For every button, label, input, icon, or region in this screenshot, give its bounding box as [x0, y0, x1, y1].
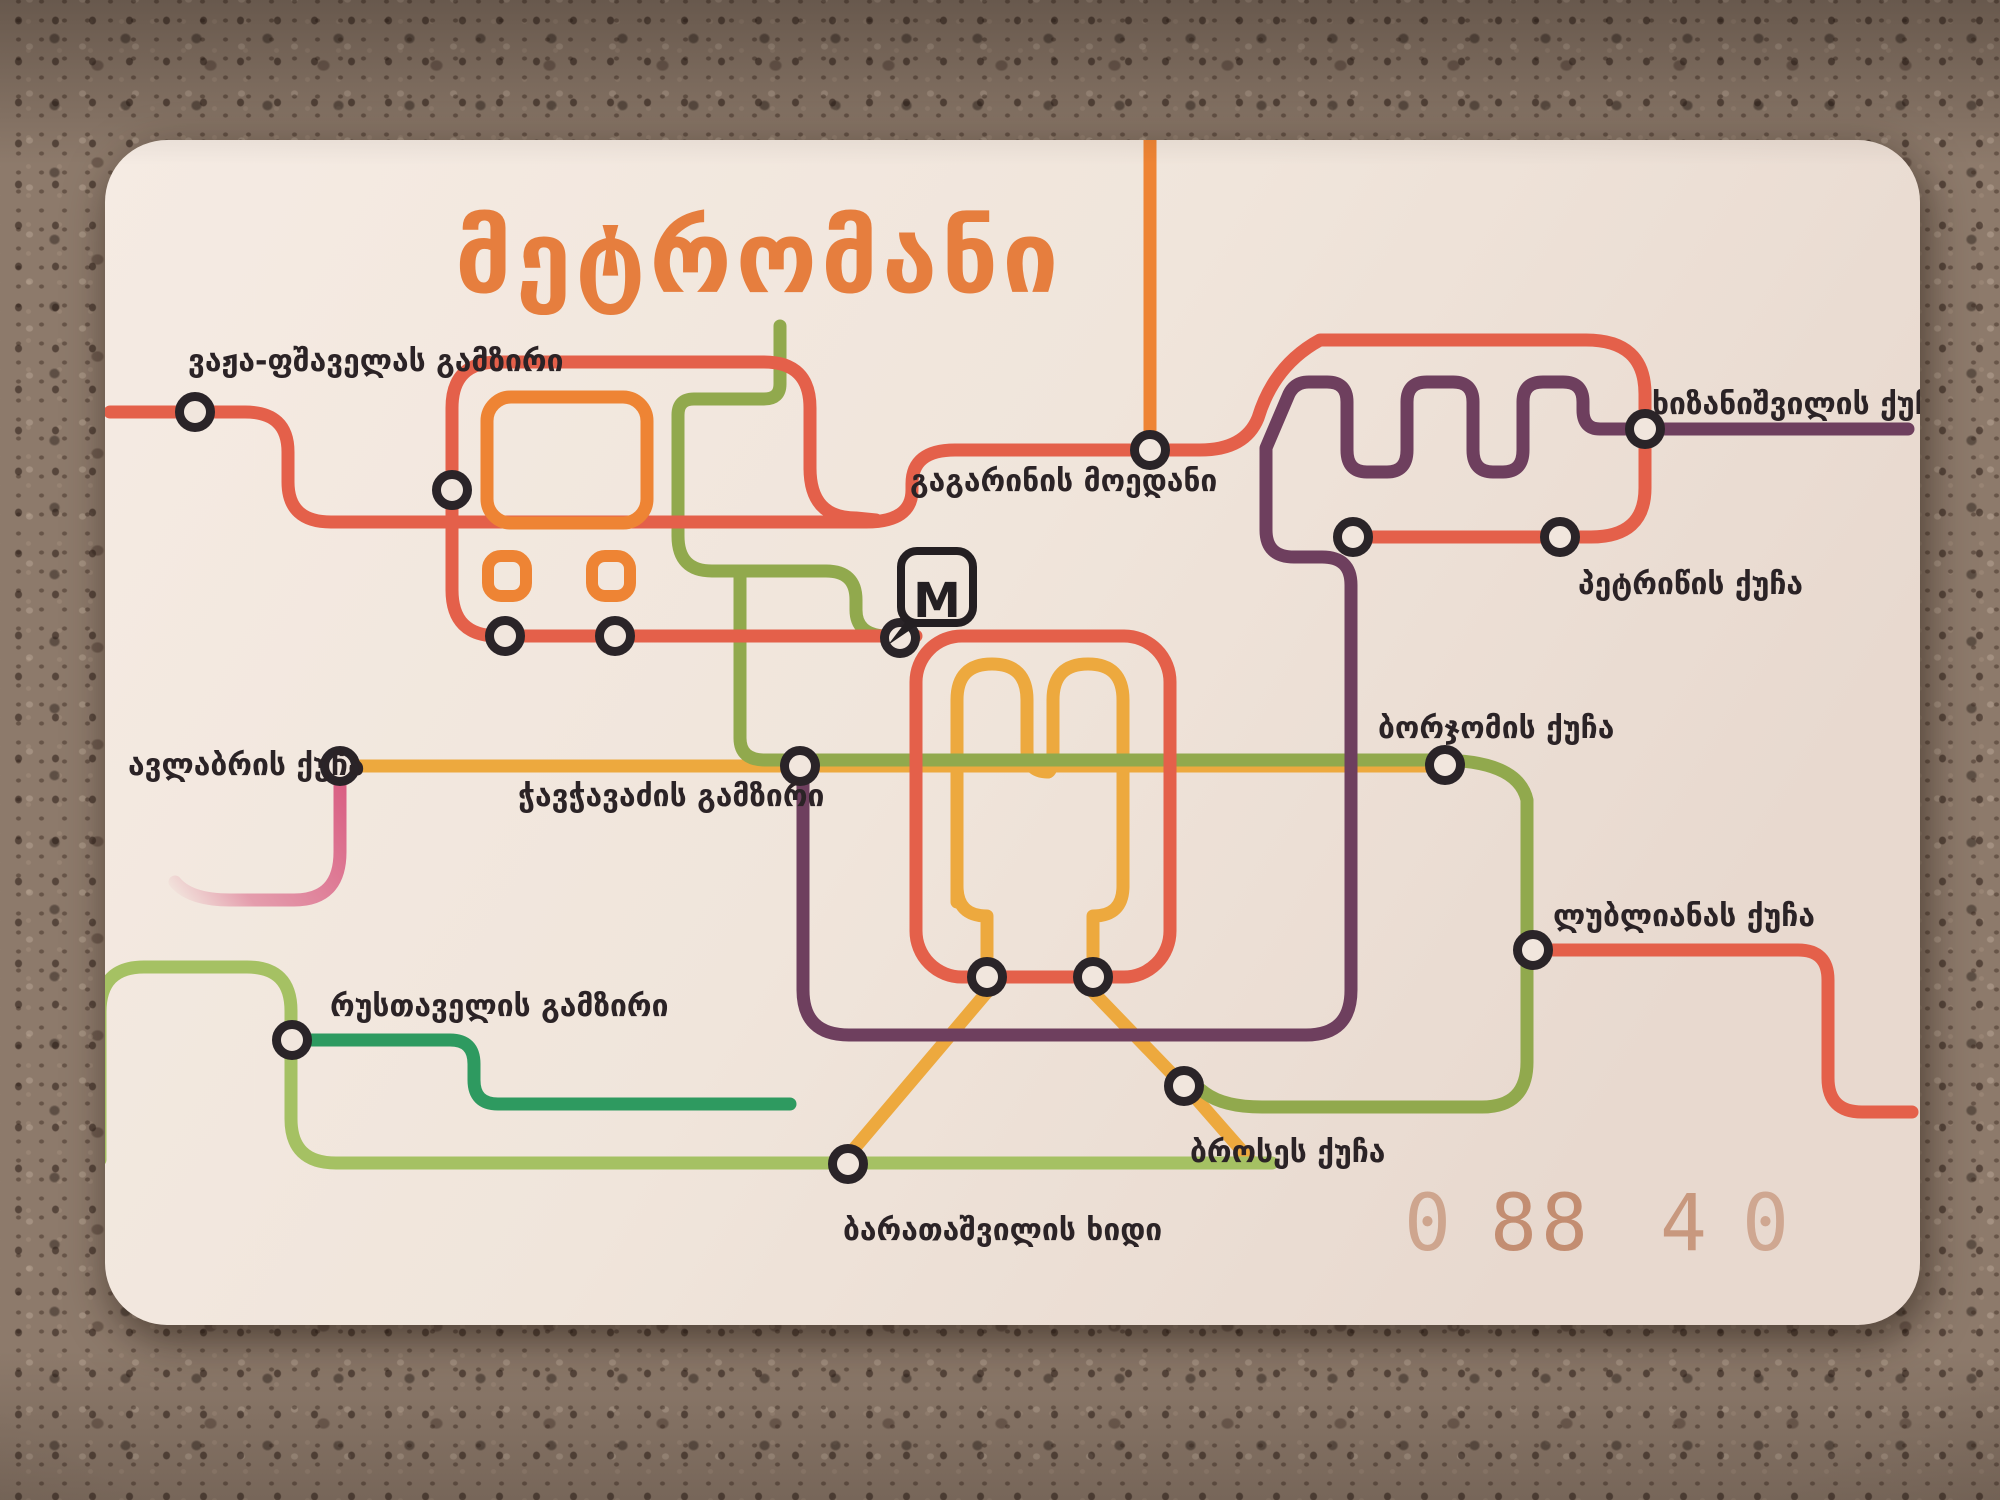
station-label-chavchavadze: ჭავჭავაძის გამზირი	[518, 779, 824, 814]
station-marker-minibus-left	[1338, 522, 1369, 553]
station-label-petritsi: პეტრიწის ქუჩა	[1578, 567, 1803, 602]
station-marker-petritsi	[1545, 522, 1576, 553]
station-label-vazha: ვაჟა-ფშაველას გამზირი	[188, 344, 564, 379]
card-surface	[105, 140, 1920, 1325]
station-label-avlabari: ავლაბრის ქუჩა	[128, 748, 365, 783]
serial-digit-3: 4	[1660, 1179, 1711, 1269]
station-marker-foot-right	[1078, 962, 1109, 993]
station-marker-borjomi	[1430, 750, 1461, 781]
station-marker-vazha	[180, 397, 211, 428]
serial-digit-4: 0	[1742, 1179, 1793, 1269]
station-label-rustaveli: რუსთაველის გამზირი	[330, 989, 668, 1024]
station-marker-wheel-right	[600, 621, 631, 652]
station-label-khizanishvili: ხიზანიშვილის ქუჩა	[1652, 387, 1948, 422]
station-label-borjomi: ბორჯომის ქუჩა	[1378, 711, 1614, 746]
card-title: მეტრომანი	[455, 199, 1062, 316]
serial-digit-1: 0	[1404, 1179, 1455, 1269]
metro-card	[105, 140, 1920, 1325]
station-marker-chavchavadze	[785, 751, 816, 782]
station-marker-bus-front	[437, 475, 468, 506]
station-marker-ljubljana	[1518, 935, 1549, 966]
station-label-brosse: ბროსეს ქუჩა	[1190, 1135, 1385, 1170]
station-label-baratashvili: ბარათაშვილის ხიდი	[843, 1213, 1162, 1248]
station-marker-brosse	[1169, 1071, 1200, 1102]
serial-digit-2: 88	[1490, 1179, 1592, 1269]
station-marker-baratashvili	[833, 1149, 864, 1180]
station-label-ljubljana: ლუბლიანას ქუჩა	[1553, 899, 1815, 934]
station-marker-foot-left	[972, 962, 1003, 993]
metro-logo-letter: M	[913, 573, 961, 629]
station-marker-gagarini	[1135, 435, 1166, 466]
station-marker-rustaveli	[277, 1025, 308, 1056]
photo-of-metro-card: M მეტრომანი ვაჟა-ფშაველას გამზირი გაგარი…	[0, 0, 2000, 1500]
station-label-gagarini: გაგარინის მოედანი	[910, 464, 1217, 499]
station-marker-wheel-left	[490, 621, 521, 652]
